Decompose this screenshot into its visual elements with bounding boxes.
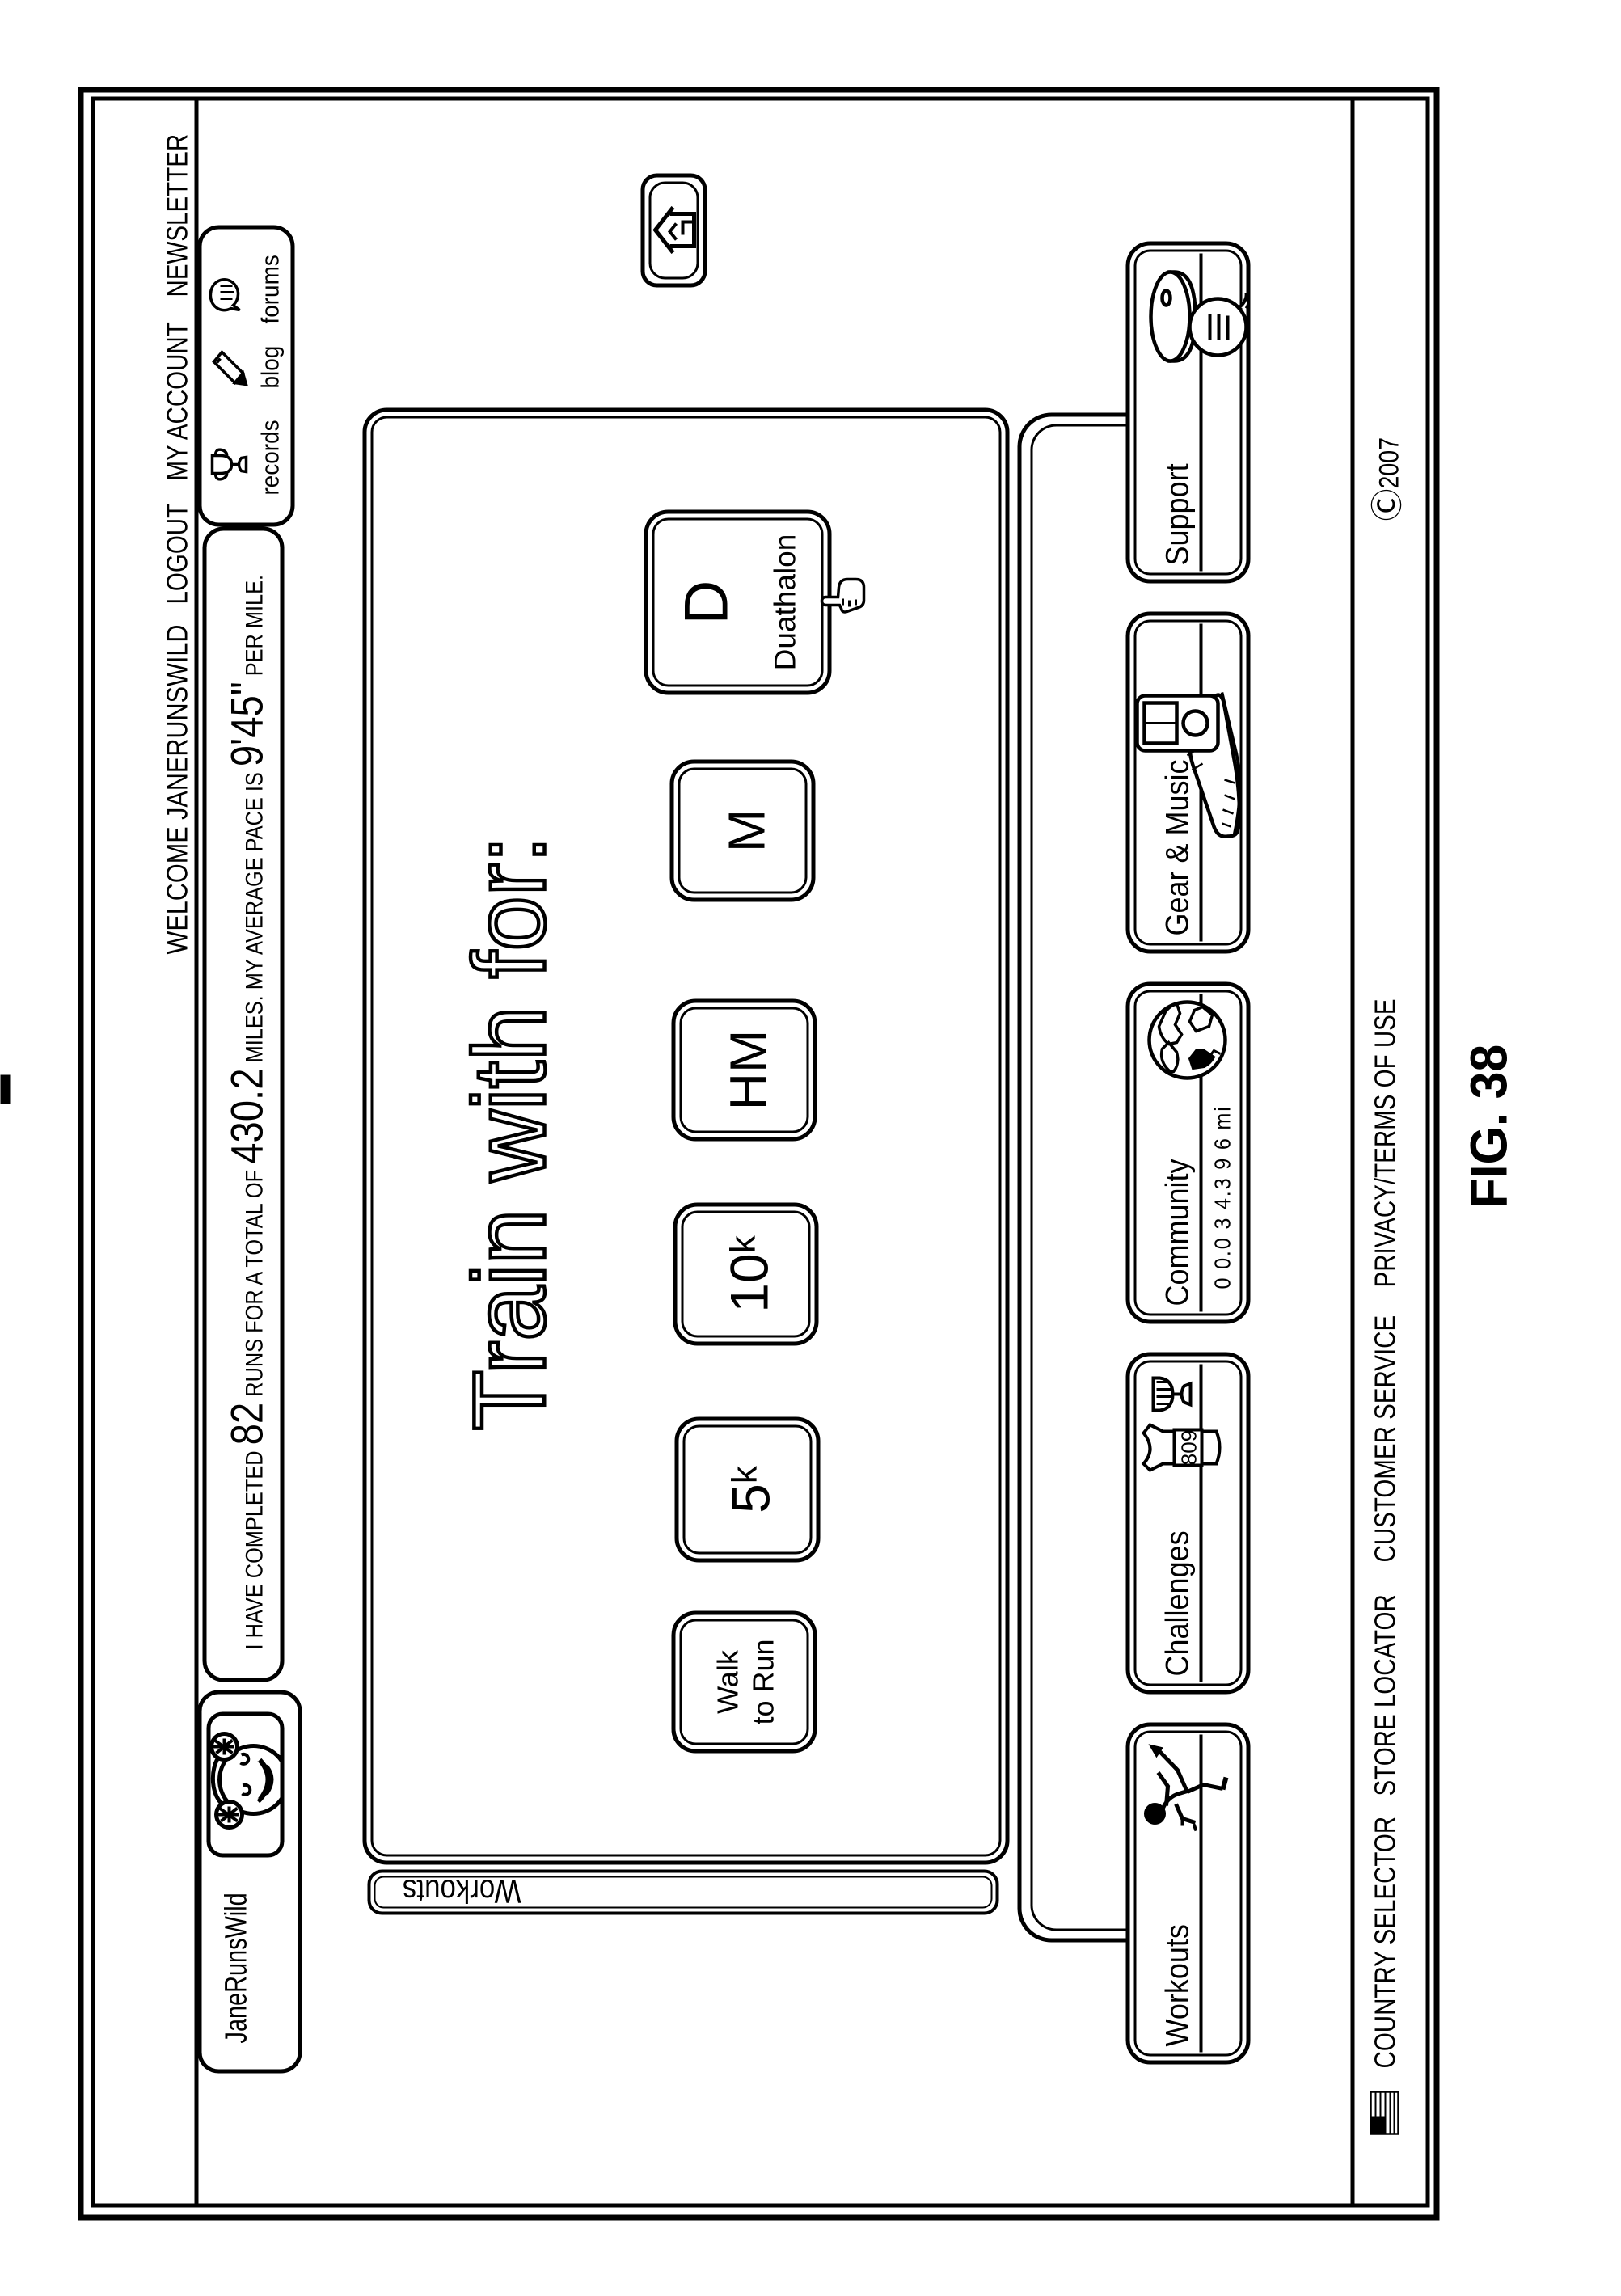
svg-text:809: 809 [1176, 1429, 1201, 1464]
